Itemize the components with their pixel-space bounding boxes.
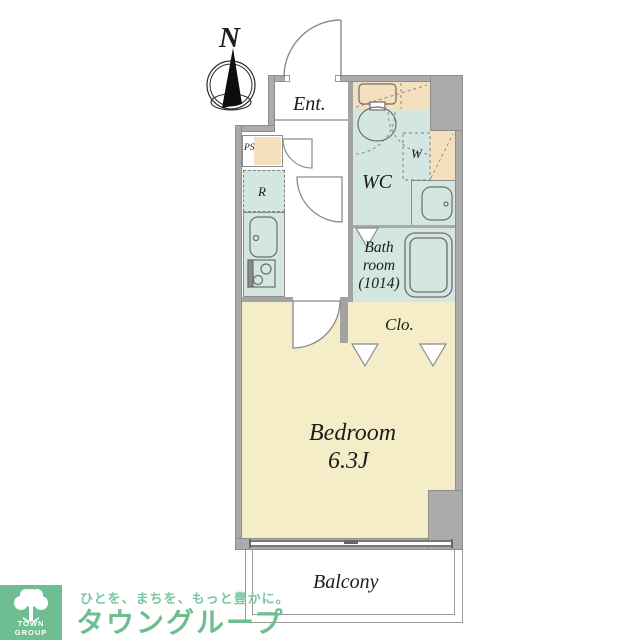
entrance-step-line: [275, 119, 348, 121]
entrance-opening: [284, 75, 341, 82]
wc-shelf: [353, 82, 430, 110]
bathroom-label-line2: room: [355, 257, 403, 275]
entrance-door-icon: [284, 20, 341, 77]
wall-door-stub: [340, 297, 348, 343]
bathroom-label-line1: Bath: [355, 239, 403, 257]
town-group-logo: TOWN GROUP: [0, 585, 62, 640]
compass-icon: [207, 48, 255, 110]
wall-left: [235, 125, 242, 550]
wall-wc-bath-divider: [353, 225, 455, 228]
kitchen-counter: [243, 212, 285, 297]
entrance-label: Ent.: [293, 94, 326, 114]
brand-name: タウングループ: [76, 601, 284, 640]
entrance-jamb-left: [284, 75, 290, 82]
washbasin-area-floor: [411, 180, 455, 228]
town-group-label: TOWN GROUP: [0, 619, 62, 637]
bedroom-size-label: 6.3J: [328, 449, 369, 473]
refrigerator-label: R: [258, 185, 266, 198]
pipe-space-duct: [254, 137, 281, 165]
pipe-space-label: PS: [244, 144, 255, 154]
wall-left-upper: [268, 75, 275, 132]
wall-wc-left: [348, 82, 353, 302]
bathroom-label: Bath room (1014): [355, 239, 403, 292]
bedroom-label: Bedroom: [309, 421, 396, 445]
wc-label: WC: [362, 172, 392, 192]
floorplan-page: N Ent. PS R WC W Bath room (1014) Clo. B…: [0, 0, 640, 640]
bedroom-window: [250, 540, 452, 547]
balcony-label: Balcony: [313, 572, 379, 592]
north-label: N: [219, 24, 240, 53]
washer-corner-area: [430, 131, 455, 180]
bathroom-label-line3: (1014): [355, 275, 403, 293]
closet-label: Clo.: [385, 316, 414, 333]
wall-right: [455, 75, 463, 550]
entrance-jamb-right: [335, 75, 341, 82]
washer-label: W: [411, 147, 422, 160]
wall-topright-block: [430, 75, 463, 131]
wall-bedroom-top: [242, 297, 293, 302]
